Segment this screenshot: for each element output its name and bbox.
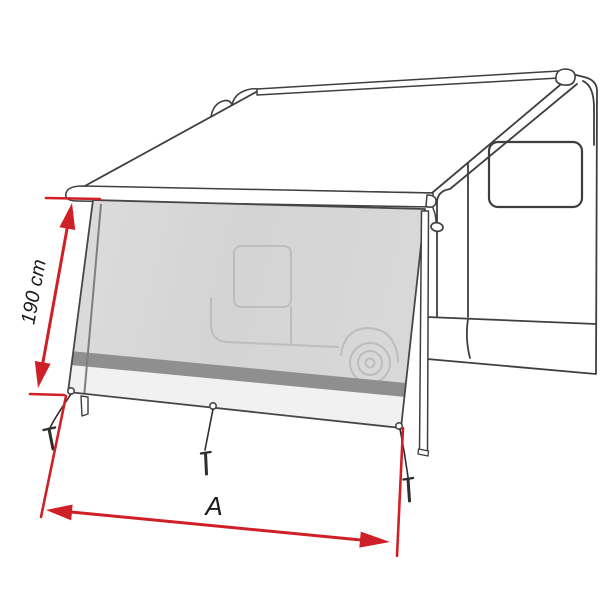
extension-line-a-left: [41, 396, 66, 517]
extension-line-top: [46, 198, 100, 199]
grommet-right: [396, 423, 402, 429]
right-support-leg-foot: [418, 449, 429, 456]
peg-left: [44, 428, 56, 450]
diagram-canvas: 190 cm A: [0, 0, 611, 600]
peg-right-shaft: [408, 479, 410, 501]
van-skirt-line: [427, 317, 596, 324]
peg-middle: [201, 452, 211, 474]
guy-line-middle: [205, 409, 213, 450]
peg-middle-shaft: [206, 453, 207, 474]
height-dimension-label: 190 cm: [17, 258, 50, 326]
van-corner-inner-curve: [583, 81, 594, 145]
extension-line-bottom: [30, 394, 64, 395]
awning-dimension-diagram: 190 cm A: [0, 0, 611, 600]
peg-right: [404, 478, 414, 501]
width-dimension-label: A: [203, 491, 222, 521]
tie-down-strap: [433, 208, 436, 222]
van-skirt-curve: [467, 319, 470, 358]
lead-bar-end-cap: [426, 195, 436, 207]
arrowhead-width-right: [359, 532, 390, 548]
arrowhead-height-top: [59, 203, 75, 230]
peg-left-shaft: [49, 429, 53, 449]
arrowhead-height-bottom: [35, 361, 51, 388]
extension-line-a-right: [397, 428, 403, 556]
awning-roller-cap: [556, 69, 575, 85]
arrowhead-width-left: [46, 505, 73, 521]
right-support-leg: [420, 211, 429, 452]
front-panel: [60, 200, 425, 440]
van-window: [489, 142, 582, 207]
tie-down-loop: [430, 222, 443, 232]
left-support-leg-foot: [81, 396, 88, 416]
height-dimension-line: [43, 229, 67, 362]
